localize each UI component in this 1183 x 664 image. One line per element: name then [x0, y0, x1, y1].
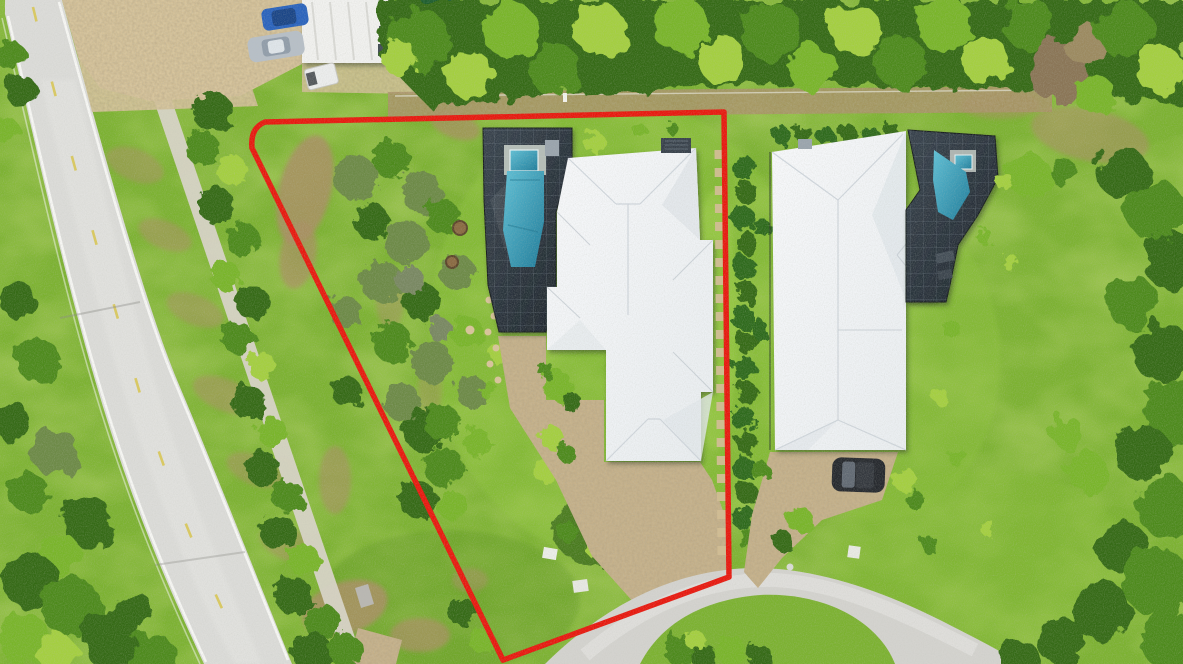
aerial-photo: [0, 0, 1183, 664]
photo-grain: [0, 0, 1183, 664]
